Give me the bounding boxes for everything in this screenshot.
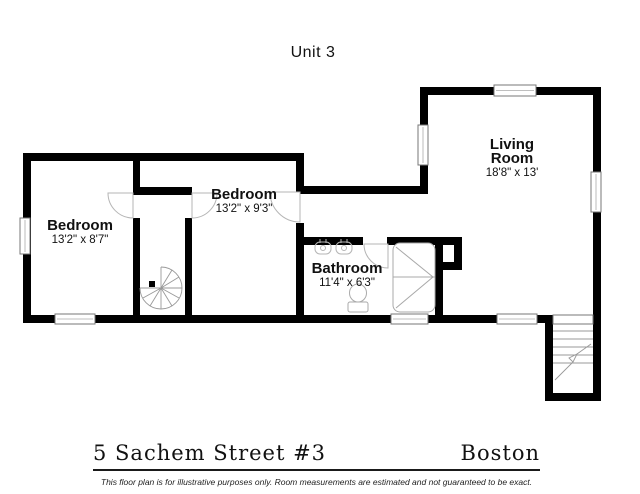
room-name: Bedroom bbox=[20, 219, 140, 233]
floor-plan-page: Unit 3 bbox=[0, 0, 640, 494]
room-dims: 11'4" x 6'3" bbox=[287, 277, 407, 290]
room-name: Bathroom bbox=[287, 262, 407, 276]
wall-hall-top bbox=[296, 186, 428, 194]
wall-stairshaft-left bbox=[545, 315, 553, 401]
room-name: Living Room bbox=[483, 138, 541, 166]
disclaimer-text: This floor plan is for illustrative purp… bbox=[93, 477, 540, 487]
room-dims: 18'8" x 13' bbox=[457, 167, 567, 180]
wall-stairwell-right bbox=[185, 218, 192, 323]
door-left-bedroom bbox=[108, 193, 133, 218]
city-text: Boston bbox=[461, 441, 540, 465]
wall-chase-bottom bbox=[443, 262, 462, 270]
spiral-staircase-icon bbox=[140, 267, 182, 309]
room-dims: 13'2" x 8'7" bbox=[20, 234, 140, 247]
room-label-bedroom-middle: Bedroom 13'2" x 9'3" bbox=[184, 188, 304, 216]
stair-threshold bbox=[553, 315, 593, 324]
address-text: 5 Sachem Street #3 bbox=[93, 441, 326, 465]
wall-bottom-main bbox=[23, 315, 553, 323]
room-label-living-room: Living Room 18'8" x 13' bbox=[457, 138, 567, 180]
wall-top-main bbox=[23, 153, 304, 161]
floor-plan-drawing bbox=[0, 0, 640, 494]
wall-shower-right bbox=[435, 237, 443, 323]
room-label-bathroom: Bathroom 11'4" x 6'3" bbox=[287, 262, 407, 290]
wall-stairshaft-bottom bbox=[545, 393, 601, 401]
wall-livingroom-right bbox=[593, 87, 601, 401]
exterior-stairs-icon bbox=[553, 331, 593, 380]
room-label-bedroom-left: Bedroom 13'2" x 8'7" bbox=[20, 219, 140, 247]
room-dims: 13'2" x 9'3" bbox=[184, 203, 304, 216]
footer-title-row: 5 Sachem Street #3 Boston bbox=[93, 441, 540, 471]
room-name: Bedroom bbox=[184, 188, 304, 202]
footer: 5 Sachem Street #3 Boston This floor pla… bbox=[93, 441, 540, 487]
